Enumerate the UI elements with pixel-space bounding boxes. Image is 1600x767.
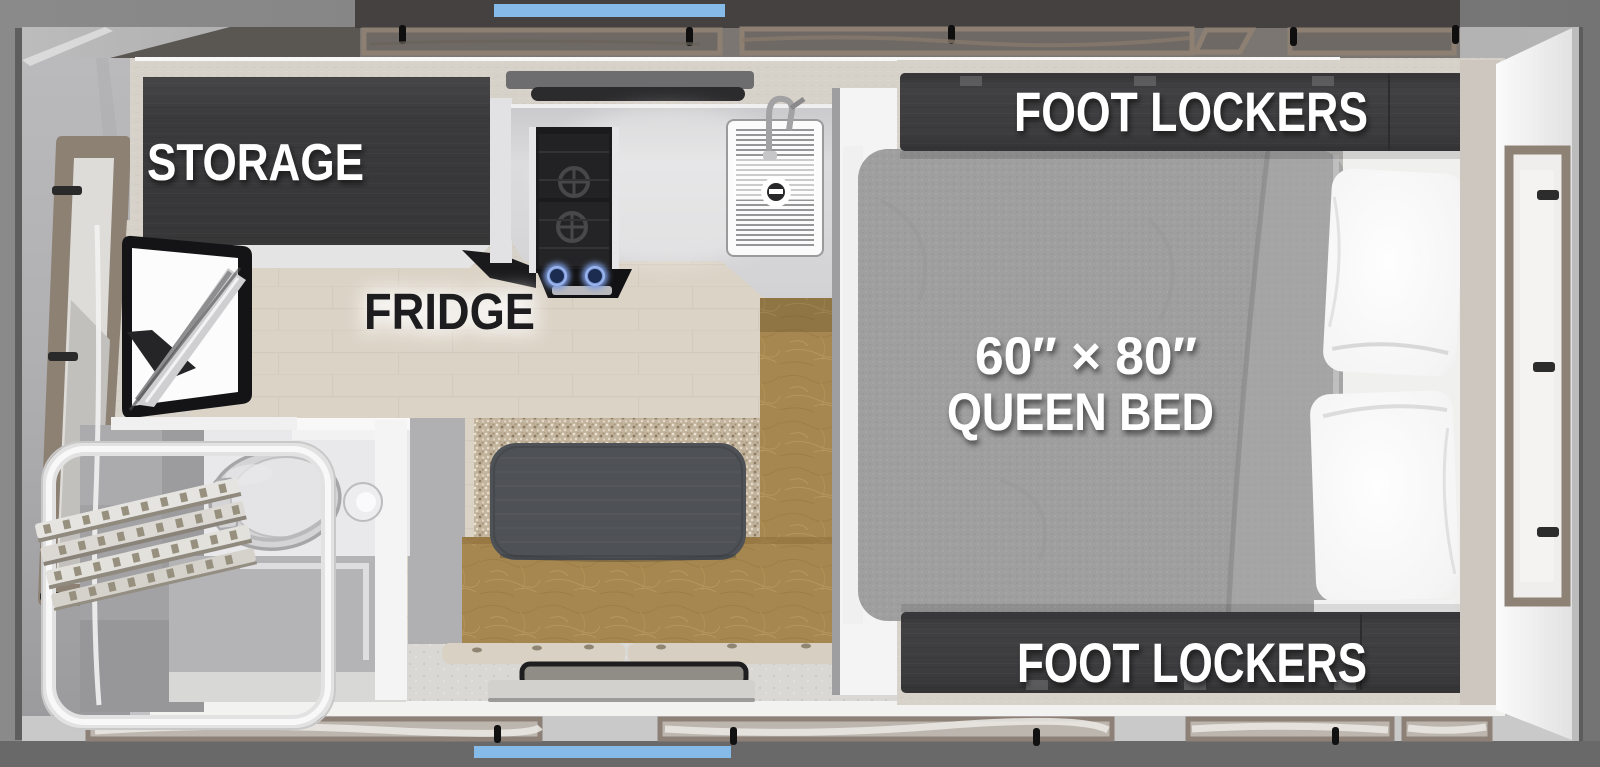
svg-text:STORAGE: STORAGE <box>147 134 364 192</box>
svg-text:QUEEN BED: QUEEN BED <box>947 383 1214 442</box>
svg-text:FOOT LOCKERS: FOOT LOCKERS <box>1017 631 1367 694</box>
svg-text:FRIDGE: FRIDGE <box>364 283 535 340</box>
svg-text:60″ × 80″: 60″ × 80″ <box>975 327 1197 386</box>
svg-text:FOOT LOCKERS: FOOT LOCKERS <box>1014 80 1368 143</box>
